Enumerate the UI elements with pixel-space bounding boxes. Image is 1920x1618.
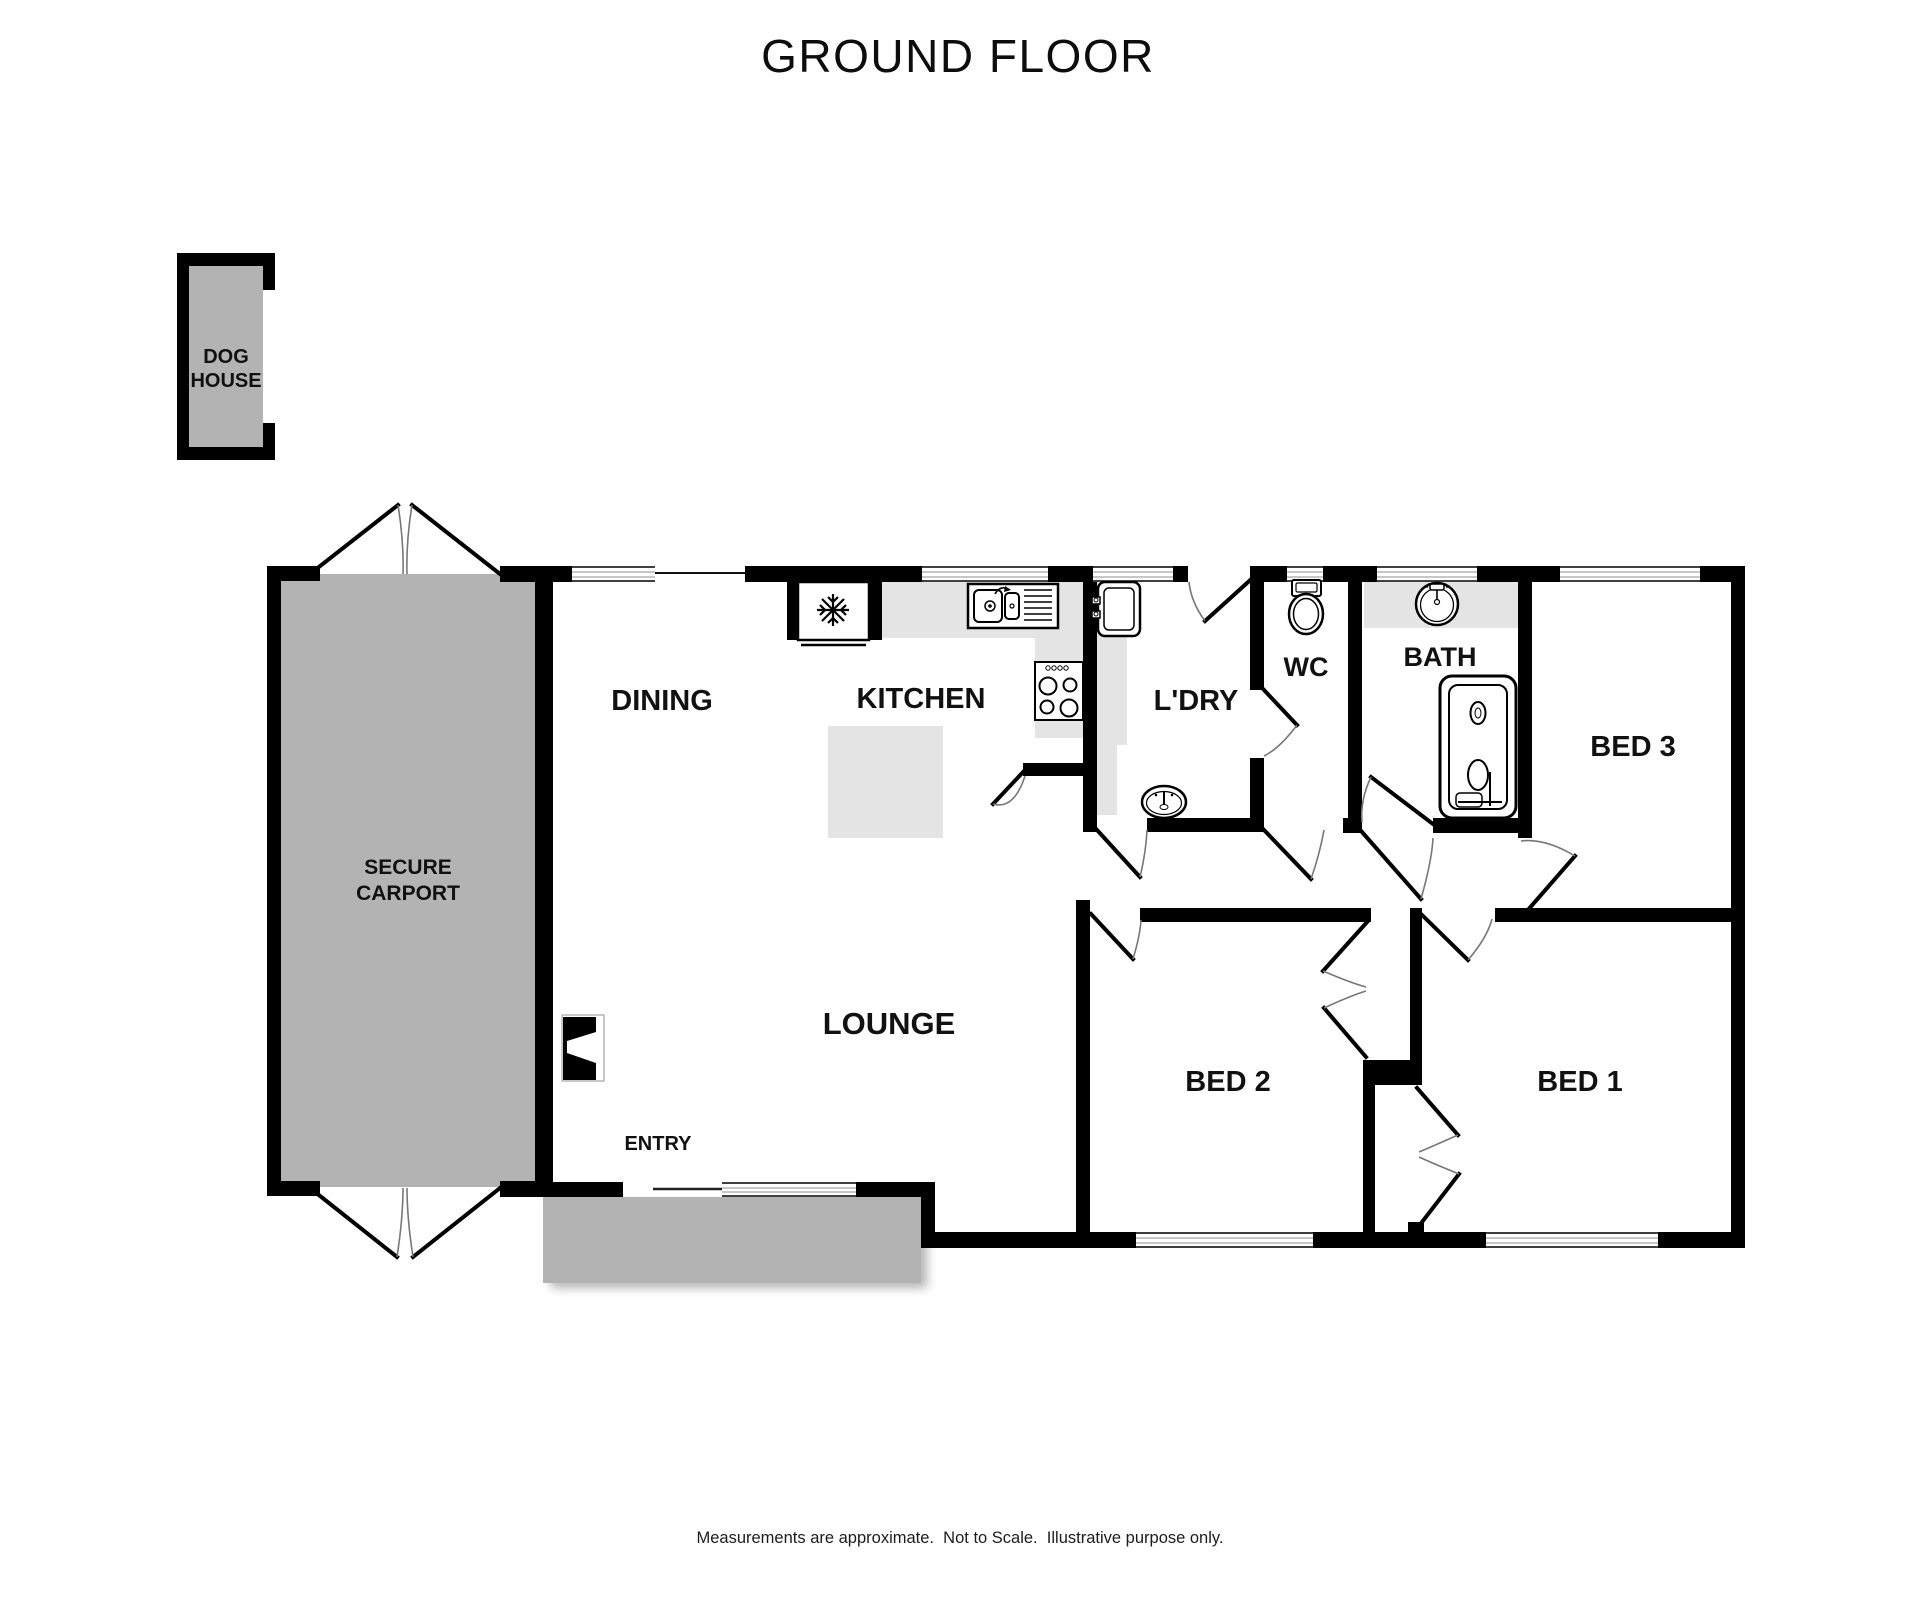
bed2-wardrobe-doors (1323, 921, 1368, 1057)
kitchen-island (828, 726, 943, 838)
fireplace-icon (562, 1015, 604, 1081)
label-bed3: BED 3 (1590, 731, 1675, 763)
carport-front-double-door (310, 505, 500, 574)
openings (653, 573, 745, 1189)
label-bed1: BED 1 (1537, 1066, 1622, 1098)
bathtub-icon (1440, 676, 1516, 818)
label-entry: ENTRY (624, 1133, 692, 1155)
floor-plan-page: GROUND FLOOR DOG HOUSE SECURE CARPORT DI… (0, 0, 1920, 1618)
outdoor-areas (189, 266, 927, 1288)
bed1-wardrobe-doors (1417, 1088, 1459, 1226)
page-title: GROUND FLOOR (761, 30, 1155, 82)
stove-icon (1035, 662, 1083, 720)
label-wc: WC (1284, 652, 1329, 682)
label-bath: BATH (1404, 642, 1477, 672)
laundry-hall-door (1097, 830, 1147, 877)
wc-hall-door (1264, 830, 1324, 879)
label-kitchen: KITCHEN (857, 683, 986, 715)
laundry-basin-icon (1142, 786, 1186, 818)
wc-laundry-door (1264, 690, 1297, 756)
label-bed2: BED 2 (1185, 1066, 1270, 1098)
carport-rear-double-door (310, 1188, 500, 1257)
label-dining: DINING (611, 685, 713, 717)
window-bed3 (1560, 566, 1700, 582)
label-dog-house-2: HOUSE (190, 370, 261, 392)
label-lounge: LOUNGE (823, 1006, 956, 1041)
label-carport-2: CARPORT (356, 882, 460, 905)
window-kitchen (922, 566, 1048, 582)
window-bath (1377, 566, 1477, 582)
floor-plan: GROUND FLOOR DOG HOUSE SECURE CARPORT DI… (0, 0, 1920, 1618)
window-laundry (1093, 566, 1173, 582)
bed3-door (1521, 841, 1575, 911)
label-laundry: L'DRY (1154, 685, 1239, 717)
window-bed1 (1486, 1232, 1658, 1248)
window-bed2 (1136, 1232, 1313, 1248)
bath-door (1362, 777, 1433, 899)
bath-basin-icon (1416, 583, 1458, 625)
disclaimer-text: Measurements are approximate. Not to Sca… (696, 1529, 1223, 1547)
label-carport-1: SECURE (364, 856, 452, 879)
porch-area (543, 1197, 921, 1283)
toilet-icon (1289, 580, 1323, 634)
laundry-external-door (1189, 574, 1257, 621)
window-lounge (722, 1182, 856, 1197)
kitchen-sink-icon (968, 584, 1058, 628)
window-dining (572, 566, 655, 582)
bed1-door (1421, 914, 1492, 960)
fridge-icon (798, 582, 869, 645)
kitchen-hall-door (993, 770, 1025, 805)
label-dog-house-1: DOG (203, 346, 249, 368)
laundry-tub-icon (1092, 582, 1140, 636)
carport-area (281, 574, 535, 1187)
laundry-bench-lower (1097, 745, 1117, 815)
bed2-door (1091, 914, 1141, 959)
